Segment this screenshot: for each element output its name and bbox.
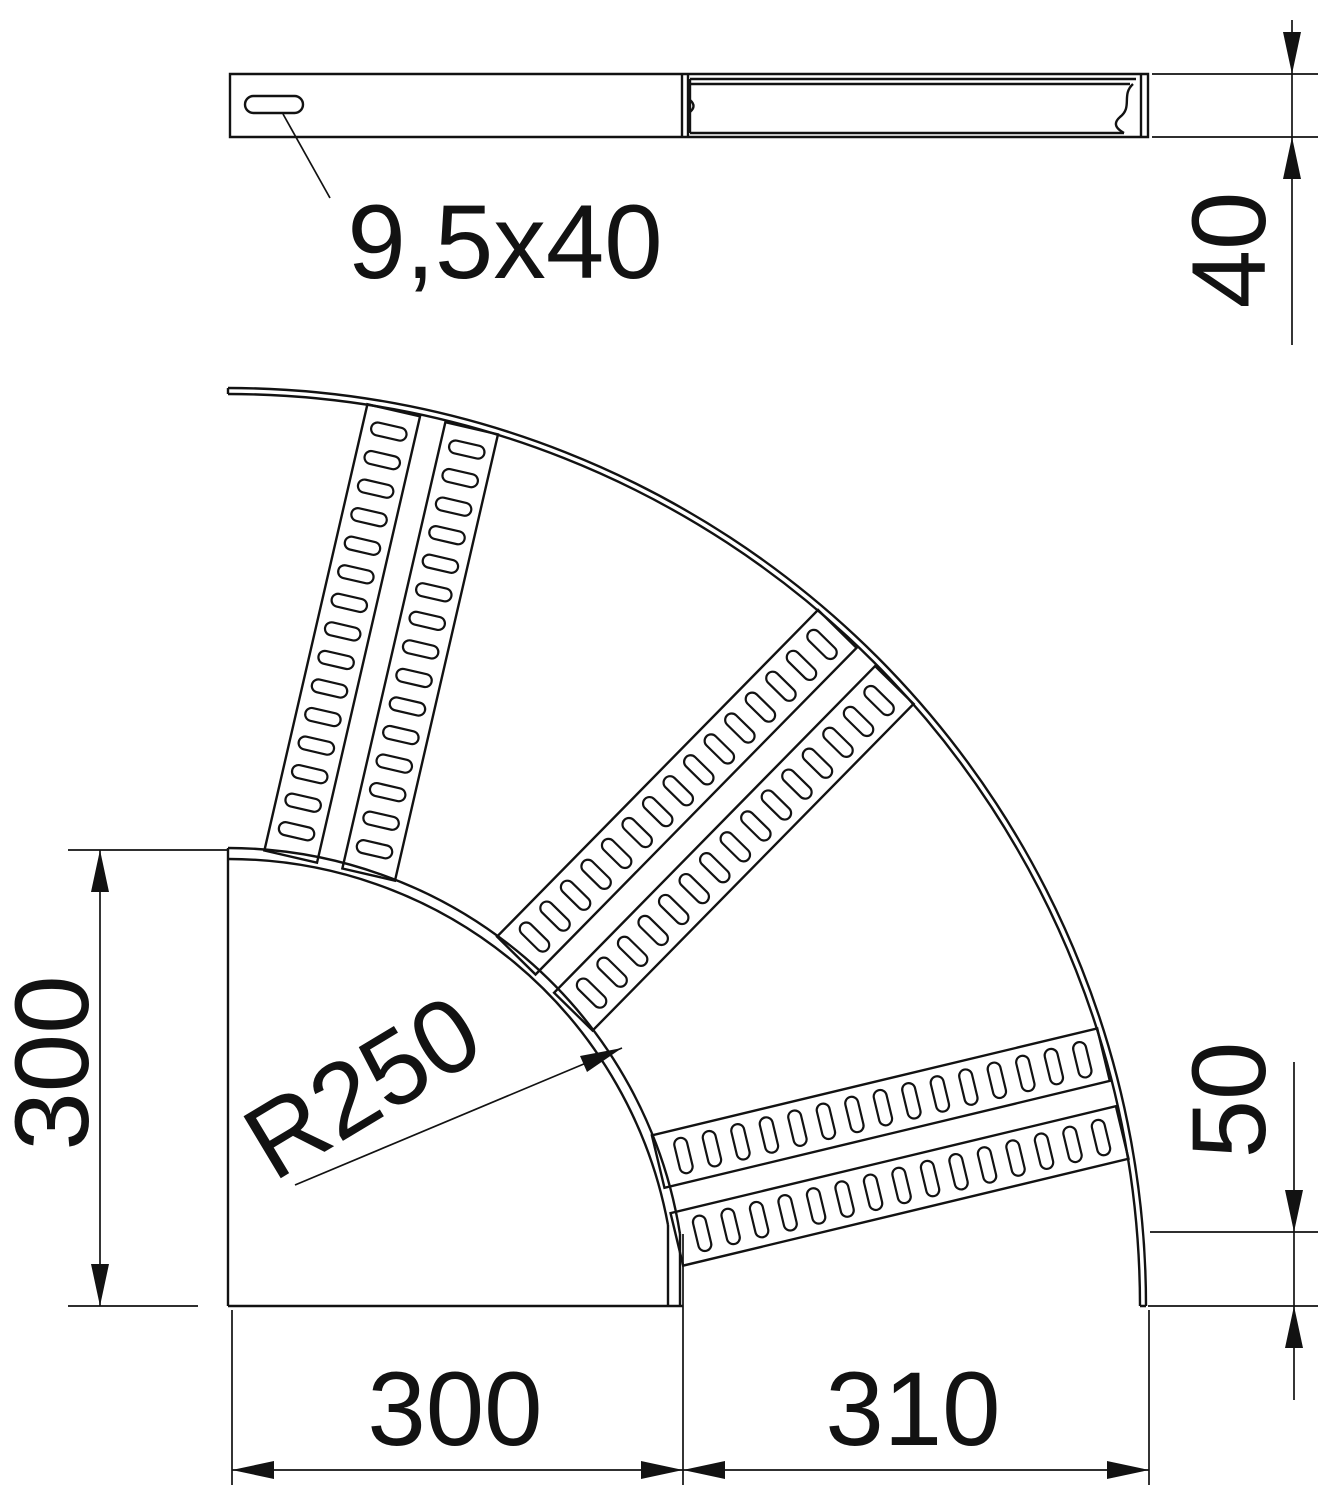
rung-slot bbox=[615, 934, 650, 969]
rung-slot bbox=[435, 496, 473, 517]
dim310-arrow-right bbox=[1107, 1461, 1149, 1479]
dim300-bottom-arrow-left bbox=[232, 1461, 274, 1479]
dim300-left-arrow-bottom bbox=[91, 1264, 109, 1306]
rung-slot bbox=[574, 976, 609, 1011]
rung-slot bbox=[891, 1166, 912, 1204]
rung-slot bbox=[1005, 1139, 1026, 1177]
dim300-left-arrow-top bbox=[91, 850, 109, 892]
rung-slot bbox=[977, 1146, 998, 1184]
rung-slot-row bbox=[673, 1041, 1093, 1175]
rung-slot bbox=[834, 1180, 855, 1218]
radius-arrowhead bbox=[580, 1048, 622, 1072]
rung-slot bbox=[677, 871, 712, 906]
rung-slot bbox=[330, 592, 368, 613]
rung-slot bbox=[862, 683, 897, 718]
rung-slot bbox=[901, 1082, 922, 1120]
dim40-arrow-top bbox=[1283, 32, 1301, 74]
rung-slot bbox=[317, 650, 355, 671]
rung-2 bbox=[497, 610, 914, 1031]
curved-section-panel bbox=[690, 79, 1136, 133]
rung-slot bbox=[697, 850, 732, 885]
rung-slot bbox=[718, 830, 753, 865]
dim50-label: 50 bbox=[1171, 1042, 1288, 1159]
rung-slot bbox=[558, 878, 593, 913]
rung-slot bbox=[920, 1160, 941, 1198]
rung-slot bbox=[640, 794, 675, 829]
rung-slot bbox=[681, 753, 716, 788]
rung-slot bbox=[787, 1109, 808, 1147]
plan-view: 300 300 310 50 R250 bbox=[0, 388, 1318, 1485]
rung-slot bbox=[777, 1194, 798, 1232]
rung-slot bbox=[636, 913, 671, 948]
dim50-arrow-top bbox=[1285, 1190, 1303, 1232]
side-view: 9,5x40 40 bbox=[230, 20, 1318, 345]
rung-3 bbox=[652, 1028, 1129, 1265]
rung-slot bbox=[758, 1116, 779, 1154]
rung-slot bbox=[357, 478, 395, 499]
rung-slot bbox=[815, 1102, 836, 1140]
rung-slot bbox=[1033, 1132, 1054, 1170]
rung-slot bbox=[661, 773, 696, 808]
rung-slot bbox=[284, 792, 322, 813]
panel-break-wave bbox=[1116, 84, 1133, 133]
rung-slot bbox=[863, 1173, 884, 1211]
outer-rail-end-caps bbox=[228, 388, 1146, 1306]
rung-slot bbox=[821, 725, 856, 760]
rung-slot bbox=[958, 1068, 979, 1106]
rung-slot-row bbox=[356, 439, 486, 859]
rung-slot bbox=[702, 732, 737, 767]
rung-slot bbox=[692, 1214, 713, 1252]
rung-slot bbox=[759, 788, 794, 823]
rung-slot bbox=[297, 735, 335, 756]
dim310-arrow-left bbox=[683, 1461, 725, 1479]
rung-slot bbox=[304, 707, 342, 728]
rung-slot bbox=[1043, 1048, 1064, 1086]
rung-slot bbox=[1062, 1125, 1083, 1163]
rung-slot bbox=[844, 1095, 865, 1133]
rung-slot bbox=[395, 668, 433, 689]
rung-slot bbox=[370, 421, 408, 442]
rung-slot bbox=[362, 810, 400, 831]
dim40-extension-lines bbox=[1152, 74, 1318, 137]
rung-slot bbox=[311, 678, 349, 699]
rung-slot bbox=[784, 648, 819, 683]
dim50-arrow-bottom bbox=[1285, 1306, 1303, 1348]
rung-slot bbox=[738, 809, 773, 844]
dim300-bottom-label: 300 bbox=[367, 1351, 542, 1468]
rung-slot bbox=[948, 1153, 969, 1191]
rung-slot bbox=[806, 1187, 827, 1225]
rung-slot bbox=[402, 639, 440, 660]
rung-slot bbox=[369, 782, 407, 803]
rung-slot bbox=[1090, 1119, 1111, 1157]
rung-1 bbox=[264, 404, 498, 880]
rung-slot bbox=[872, 1089, 893, 1127]
rung-slot bbox=[764, 669, 799, 704]
rung-slot bbox=[517, 920, 552, 955]
rung-slot bbox=[388, 696, 426, 717]
rung-slot bbox=[620, 815, 655, 850]
rung-slot-row bbox=[278, 421, 408, 841]
rung-slot bbox=[1072, 1041, 1093, 1079]
rung-slot bbox=[337, 564, 375, 585]
rung-slot bbox=[428, 525, 466, 546]
rung-slot bbox=[408, 610, 446, 631]
rung-slot bbox=[780, 767, 815, 802]
rail-slot bbox=[245, 96, 303, 113]
technical-drawing: 9,5x40 40 bbox=[0, 0, 1323, 1500]
rung-slot bbox=[730, 1123, 751, 1161]
rung-slot bbox=[441, 468, 479, 489]
dim40-label: 40 bbox=[1171, 192, 1288, 309]
rung-slot bbox=[595, 955, 630, 990]
rung-slot bbox=[800, 746, 835, 781]
rung-slot-row bbox=[692, 1119, 1112, 1253]
rung-slot bbox=[421, 553, 459, 574]
rung-slot bbox=[805, 627, 840, 662]
rung-slot bbox=[841, 704, 876, 739]
rung-slot bbox=[291, 764, 329, 785]
dim40-arrow-bottom bbox=[1283, 137, 1301, 179]
section-divider bbox=[682, 74, 688, 137]
rung-slot bbox=[324, 621, 362, 642]
inner-rail-straight-end bbox=[668, 1225, 680, 1306]
rung-slot bbox=[415, 582, 453, 603]
rung-slot bbox=[743, 690, 778, 725]
dim50-extensions bbox=[1148, 1232, 1318, 1306]
rung-slot bbox=[448, 439, 486, 460]
rung-slot bbox=[986, 1061, 1007, 1099]
dim300-bottom-arrow-right bbox=[641, 1461, 683, 1479]
rung-slot bbox=[363, 450, 401, 471]
dim300-left-label: 300 bbox=[0, 975, 111, 1150]
outer-rail-outer-arc bbox=[228, 388, 1146, 1306]
rung-slot bbox=[579, 857, 614, 892]
rung-slot bbox=[722, 711, 757, 746]
rung-slot bbox=[720, 1207, 741, 1245]
rung-slot bbox=[343, 535, 381, 556]
radius-label: R250 bbox=[225, 973, 500, 1203]
slot-leader-line bbox=[283, 114, 330, 198]
outer-rail-inner-arc bbox=[228, 394, 1140, 1306]
rung-slot bbox=[929, 1075, 950, 1113]
rung-slot bbox=[749, 1201, 770, 1239]
rung-slot bbox=[356, 839, 394, 860]
dim310-label: 310 bbox=[825, 1351, 1000, 1468]
rung-slot bbox=[538, 899, 573, 934]
rung-slot bbox=[656, 892, 691, 927]
rung-slot bbox=[599, 836, 634, 871]
slot-size-label: 9,5x40 bbox=[347, 184, 662, 301]
rung-slot bbox=[382, 725, 420, 746]
rung-slot bbox=[278, 821, 316, 842]
rung-slot bbox=[375, 753, 413, 774]
rung-slot bbox=[350, 507, 388, 528]
technical-drawing-page: 9,5x40 40 bbox=[0, 0, 1323, 1500]
rung-slot bbox=[701, 1130, 722, 1168]
rung-slot bbox=[1015, 1054, 1036, 1092]
rung-slot bbox=[673, 1136, 694, 1174]
